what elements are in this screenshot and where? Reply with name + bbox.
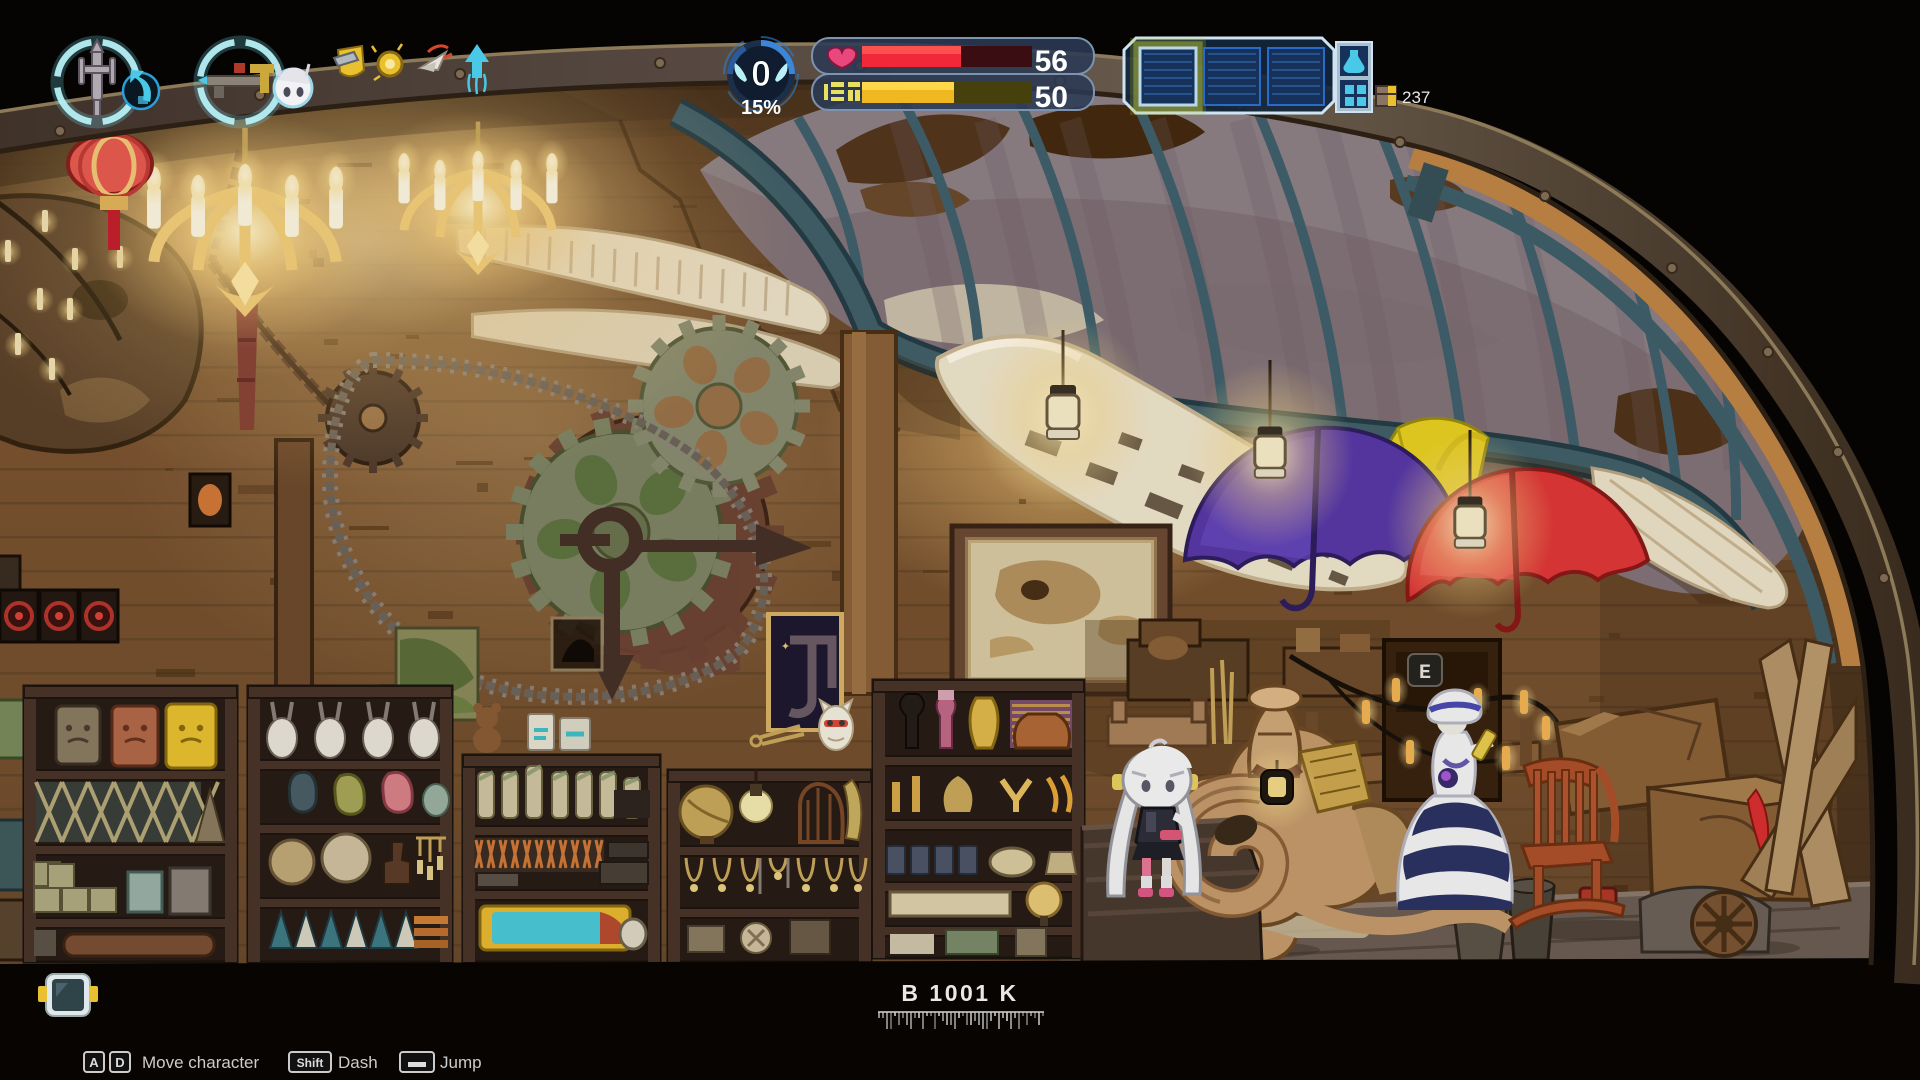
svg-text:Move character: Move character xyxy=(142,1053,259,1072)
svg-text:A: A xyxy=(89,1055,99,1070)
svg-text:0: 0 xyxy=(751,53,771,94)
svg-text:Dash: Dash xyxy=(338,1053,378,1072)
svg-text:Shift: Shift xyxy=(297,1056,324,1070)
svg-text:50: 50 xyxy=(1035,81,1068,114)
svg-text:B 1001 K: B 1001 K xyxy=(901,980,1018,1006)
svg-text:237: 237 xyxy=(1402,88,1430,107)
svg-text:D: D xyxy=(115,1055,124,1070)
svg-text:15%: 15% xyxy=(741,97,781,119)
svg-text:Jump: Jump xyxy=(440,1053,482,1072)
